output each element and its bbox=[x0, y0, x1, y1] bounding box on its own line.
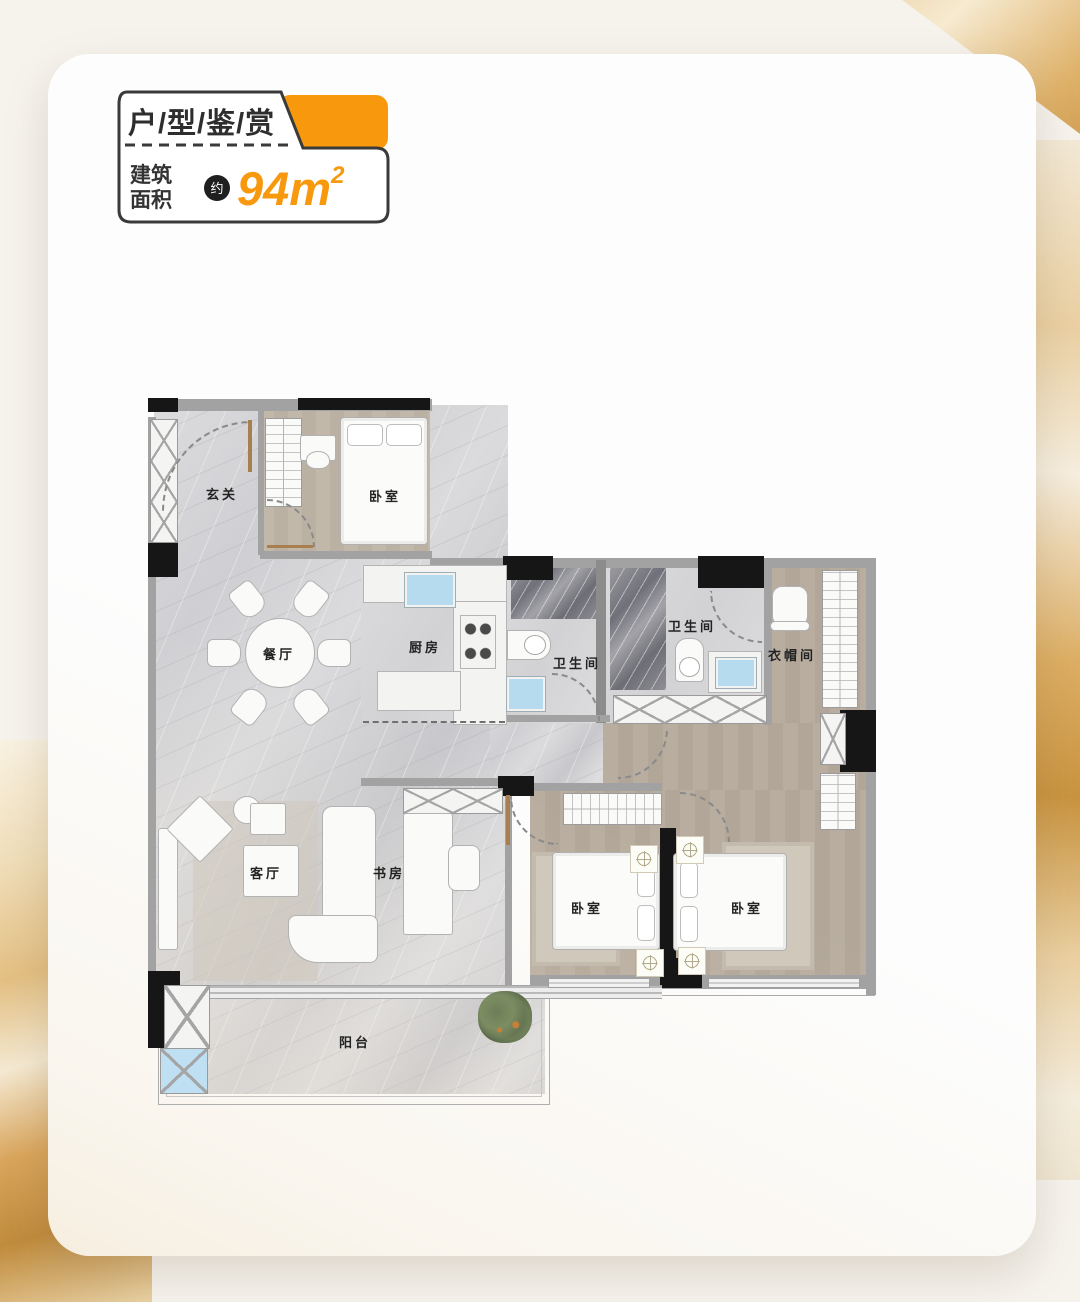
open-kitchen-boundary bbox=[363, 721, 505, 723]
ceiling-fixture bbox=[636, 949, 664, 977]
pillow bbox=[386, 424, 422, 446]
window bbox=[548, 978, 650, 988]
room-label-bedroom-left: 卧室 bbox=[547, 898, 627, 917]
window bbox=[164, 985, 210, 1049]
content-card: 户/型/鉴/赏 建筑 面积 约 94m2 bbox=[48, 54, 1036, 1256]
area-number: 94m bbox=[237, 162, 331, 215]
window bbox=[820, 713, 846, 765]
cabinet bbox=[250, 803, 286, 835]
tv-console bbox=[158, 828, 178, 950]
wall-segment bbox=[258, 407, 264, 555]
bed bbox=[340, 417, 428, 545]
room-label-bedroom-right: 卧室 bbox=[707, 898, 787, 917]
chair-back bbox=[770, 621, 810, 631]
area-superscript: 2 bbox=[330, 162, 345, 189]
pillow bbox=[680, 862, 698, 898]
pillow bbox=[637, 905, 655, 941]
kitchen-cabinet bbox=[377, 671, 461, 711]
wardrobe bbox=[822, 570, 858, 708]
bookshelf bbox=[403, 788, 503, 814]
door-arc-bedroom-left bbox=[510, 797, 558, 845]
approx-text: 约 bbox=[210, 181, 223, 196]
wall-segment bbox=[260, 551, 432, 559]
wall-segment bbox=[530, 783, 662, 791]
chair bbox=[772, 586, 808, 626]
wall-corner-block bbox=[498, 776, 534, 796]
room-label-balcony: 阳台 bbox=[315, 1032, 395, 1051]
room-label-kitchen: 厨房 bbox=[385, 637, 465, 656]
area-value: 94m2 bbox=[237, 162, 345, 215]
room-label-bathroom-1: 卫生间 bbox=[537, 653, 617, 672]
potted-plant bbox=[478, 991, 532, 1043]
wardrobe bbox=[563, 793, 662, 825]
wall-corner-block bbox=[298, 398, 430, 410]
toilet-bowl bbox=[679, 657, 700, 677]
desk-chair bbox=[448, 845, 480, 891]
stove bbox=[460, 615, 496, 669]
toilet-bowl bbox=[524, 635, 546, 655]
room-label-entrance: 玄关 bbox=[182, 484, 262, 503]
pillow bbox=[680, 906, 698, 942]
wall-segment bbox=[361, 778, 508, 786]
wall-corner-block bbox=[503, 556, 553, 580]
title-badge: 户/型/鉴/赏 建筑 面积 约 94m2 bbox=[113, 88, 393, 230]
room-label-dining: 餐厅 bbox=[239, 644, 319, 663]
floor-plan: 玄关 卧室 餐厅 厨房 卫生间 卫生间 衣帽间 客厅 书房 卧室 卧室 阳台 bbox=[148, 393, 878, 1115]
gold-ribbon-right bbox=[1030, 140, 1080, 1180]
ceiling-fixture bbox=[678, 947, 706, 975]
wall-segment bbox=[596, 560, 606, 723]
wardrobe bbox=[265, 418, 302, 507]
storage-cabinet bbox=[613, 695, 767, 724]
area-label-line2: 面积 bbox=[130, 189, 172, 212]
badge-title: 户/型/鉴/赏 bbox=[128, 106, 275, 140]
sofa-chaise bbox=[288, 915, 378, 963]
bathroom-sink bbox=[716, 658, 756, 688]
room-label-living: 客厅 bbox=[226, 863, 306, 882]
room-label-bedroom-top: 卧室 bbox=[345, 486, 425, 505]
door-leaf bbox=[248, 420, 252, 472]
area-label-line1: 建筑 bbox=[130, 163, 172, 187]
door-leaf bbox=[506, 795, 510, 845]
toilet bbox=[675, 638, 704, 682]
room-label-study: 书房 bbox=[349, 863, 429, 882]
room-label-bathroom-2: 卫生间 bbox=[652, 616, 732, 635]
wall-corner-block bbox=[148, 543, 178, 577]
wall-corner-block bbox=[148, 398, 178, 412]
window bbox=[708, 978, 860, 988]
dining-chair bbox=[207, 639, 241, 667]
wall-corner-block bbox=[698, 556, 764, 588]
pillow bbox=[347, 424, 383, 446]
door-leaf bbox=[267, 545, 313, 548]
wardrobe bbox=[820, 773, 856, 830]
washing-machine bbox=[160, 1048, 208, 1094]
ceiling-fixture bbox=[630, 845, 658, 873]
dining-chair bbox=[317, 639, 351, 667]
room-label-cloakroom: 衣帽间 bbox=[752, 645, 832, 664]
wall-segment bbox=[866, 558, 876, 995]
bathroom-sink bbox=[507, 677, 545, 711]
kitchen-sink bbox=[405, 573, 455, 607]
chair bbox=[306, 451, 330, 469]
